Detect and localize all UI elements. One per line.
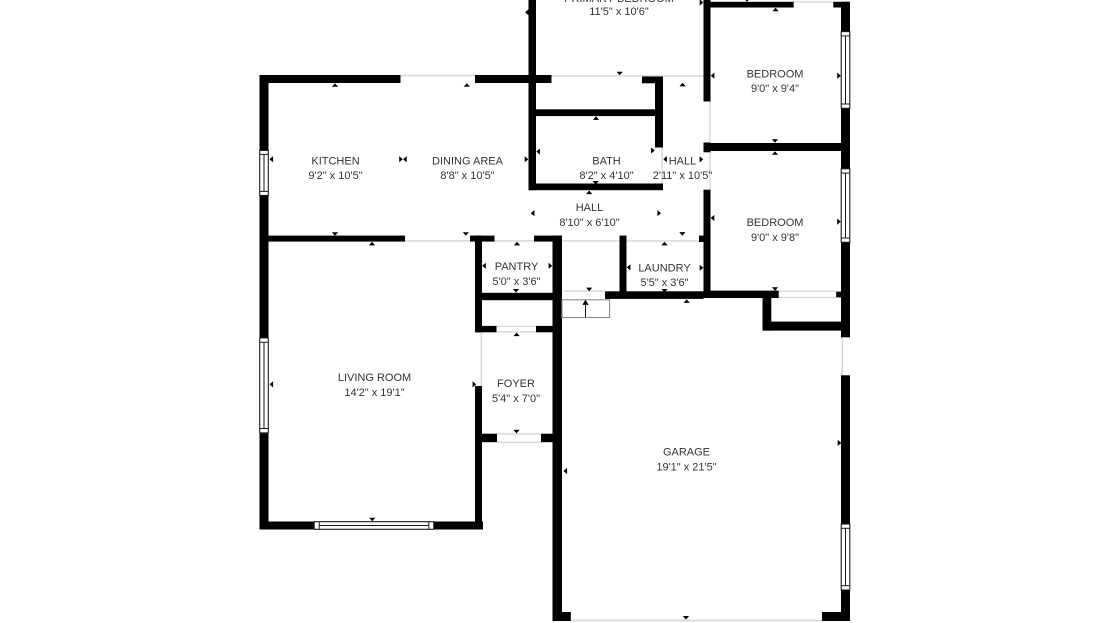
svg-text:9'0" x 9'8": 9'0" x 9'8" bbox=[751, 232, 799, 244]
svg-text:LIVING ROOM: LIVING ROOM bbox=[338, 372, 411, 384]
svg-text:8'10" x 6'10": 8'10" x 6'10" bbox=[559, 217, 619, 229]
svg-text:2'11" x 10'5": 2'11" x 10'5" bbox=[653, 170, 713, 182]
svg-text:BEDROOM: BEDROOM bbox=[747, 68, 804, 80]
svg-text:5'4" x 7'0": 5'4" x 7'0" bbox=[492, 393, 540, 405]
svg-text:11'5" x 10'6": 11'5" x 10'6" bbox=[589, 6, 649, 18]
svg-text:KITCHEN: KITCHEN bbox=[311, 156, 359, 168]
svg-text:8'2" x 4'10": 8'2" x 4'10" bbox=[579, 170, 633, 182]
svg-text:HALL: HALL bbox=[576, 202, 604, 214]
svg-text:5'5" x 3'6": 5'5" x 3'6" bbox=[640, 277, 688, 289]
svg-text:HALL: HALL bbox=[669, 156, 697, 168]
svg-text:9'0" x 9'4": 9'0" x 9'4" bbox=[751, 83, 799, 95]
svg-text:19'1" x 21'5": 19'1" x 21'5" bbox=[656, 461, 716, 473]
svg-text:5'0" x 3'6": 5'0" x 3'6" bbox=[492, 276, 540, 288]
svg-text:BEDROOM: BEDROOM bbox=[747, 217, 804, 229]
svg-text:LAUNDRY: LAUNDRY bbox=[638, 263, 691, 275]
svg-text:14'2" x 19'1": 14'2" x 19'1" bbox=[344, 387, 404, 399]
svg-text:DINING AREA: DINING AREA bbox=[432, 156, 504, 168]
svg-text:8'8" x 10'5": 8'8" x 10'5" bbox=[440, 170, 494, 182]
svg-text:FOYER: FOYER bbox=[497, 378, 535, 390]
svg-text:GARAGE: GARAGE bbox=[663, 447, 710, 459]
svg-text:PANTRY: PANTRY bbox=[495, 261, 539, 273]
svg-text:PRIMARY BEDROOM: PRIMARY BEDROOM bbox=[564, 0, 674, 5]
svg-text:BATH: BATH bbox=[592, 156, 621, 168]
svg-text:9'2" x 10'5": 9'2" x 10'5" bbox=[308, 170, 362, 182]
